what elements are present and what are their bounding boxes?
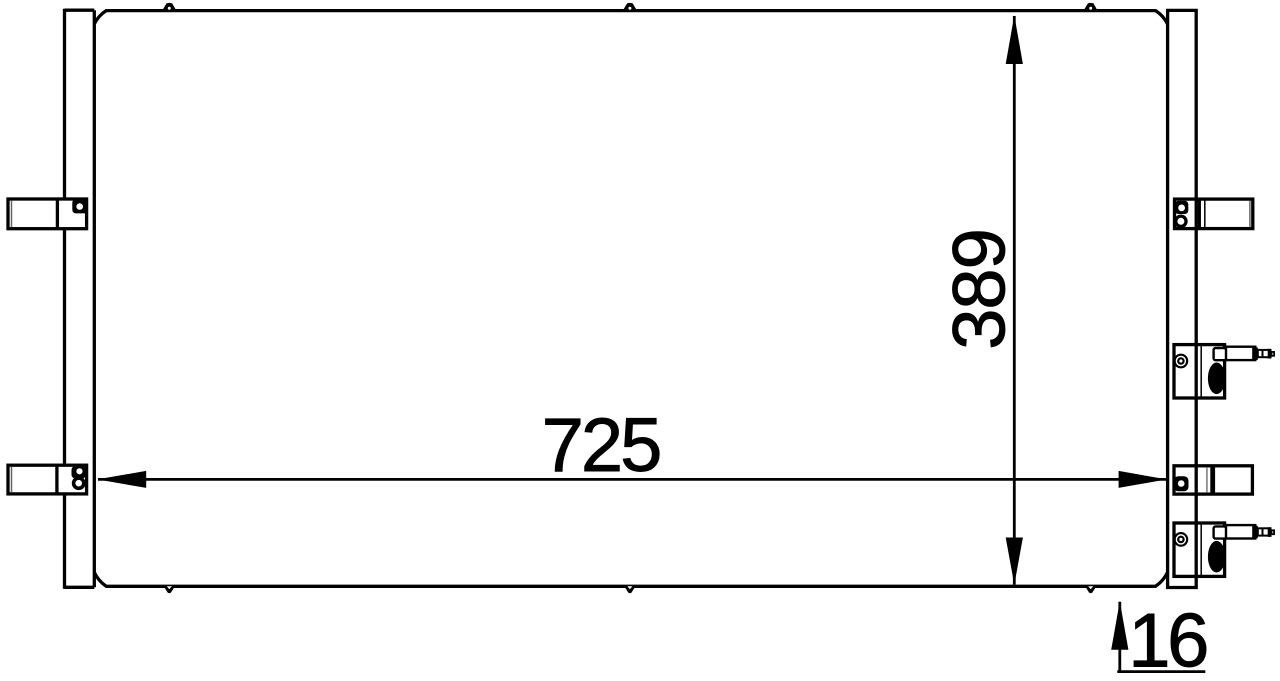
svg-text:389: 389	[938, 229, 1021, 349]
svg-text:16: 16	[1128, 599, 1206, 681]
svg-text:725: 725	[542, 403, 661, 488]
